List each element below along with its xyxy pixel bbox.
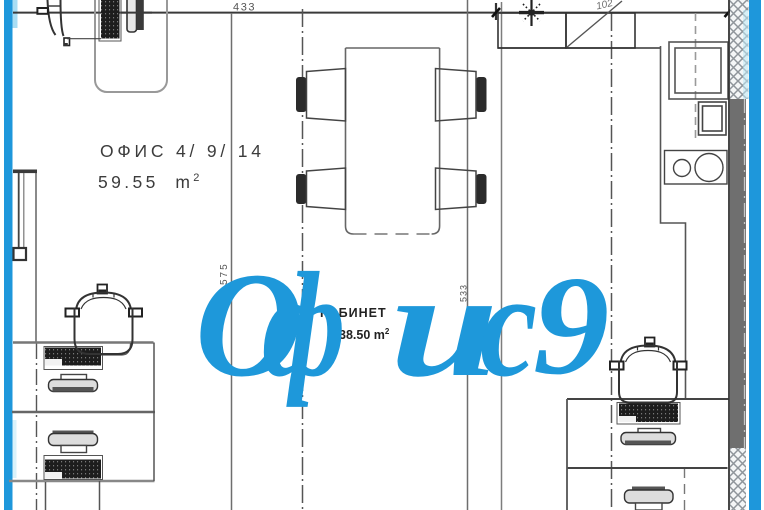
svg-text:ф: ф — [262, 242, 346, 408]
svg-text:ОФИС 4/ 9/ 14: ОФИС 4/ 9/ 14 — [100, 141, 265, 161]
svg-text:с: с — [480, 242, 537, 408]
svg-text:433: 433 — [233, 2, 256, 14]
svg-text:9: 9 — [533, 247, 609, 404]
svg-text:38.50 m2: 38.50 m2 — [339, 327, 390, 342]
svg-text:59.55 m2: 59.55 m2 — [98, 172, 203, 192]
